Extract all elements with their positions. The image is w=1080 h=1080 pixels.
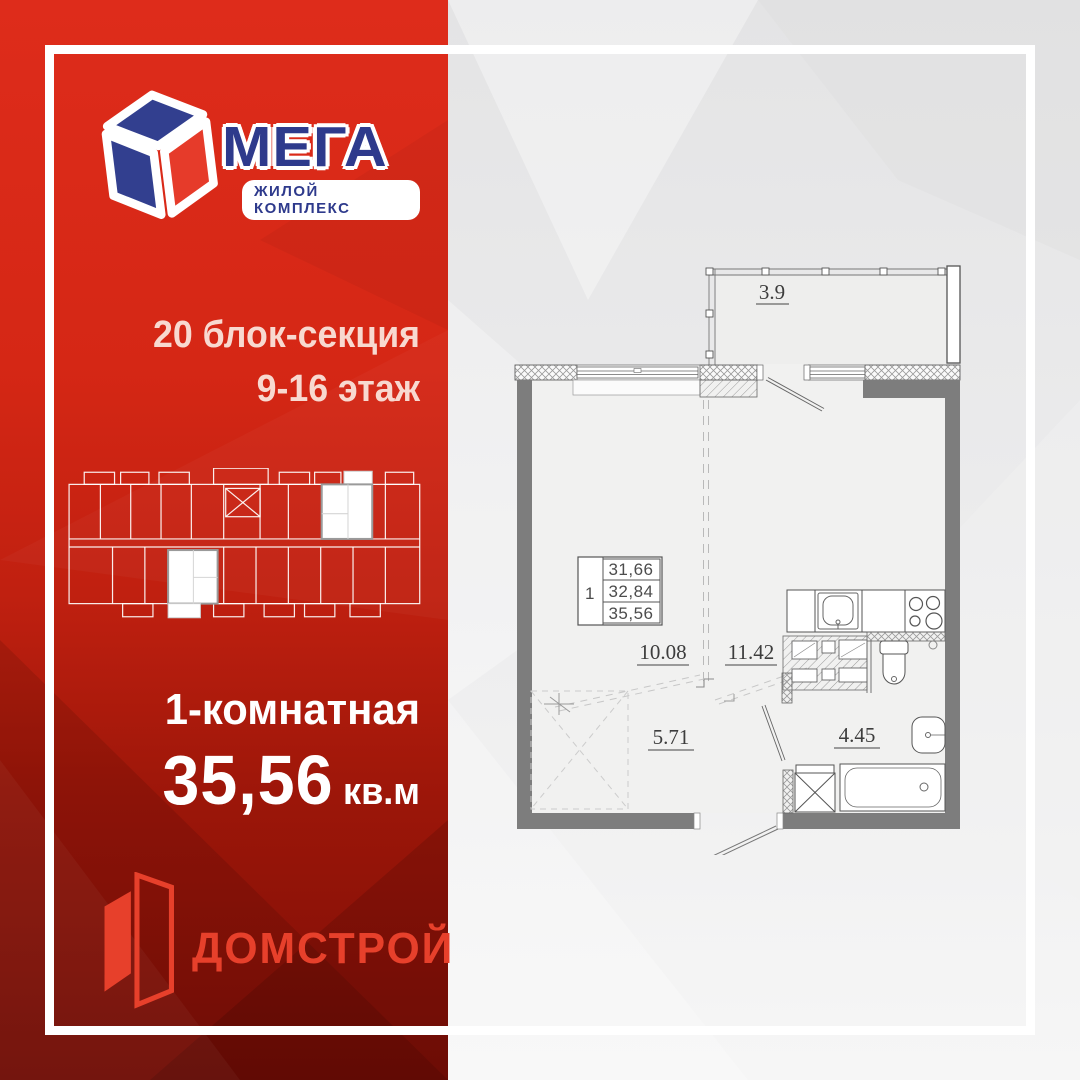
building-floor-overview [62,468,446,620]
stamp-apartment-area: 32,84 [608,582,653,601]
entry-door-leaf [664,826,778,855]
window-kitchen [810,367,865,378]
apartment-area: 35,56кв.м [78,740,420,820]
washbasin [912,717,945,753]
wc-partition-wall [867,632,945,641]
hall-area-label: 5.71 [653,725,690,749]
block-info: 20 блок-секция 9-16 этаж [100,308,420,416]
kitchen-counter [787,590,945,632]
window-main [573,367,700,395]
area-stamp: 1 31,66 32,84 35,56 [578,557,662,625]
developer-logo-block: ДОМСТРОЙ [96,872,436,1012]
toilet [880,641,908,684]
stamp-rooms: 1 [585,584,595,603]
balcony-door-opening [758,364,808,381]
floors-line: 9-16 этаж [100,362,420,416]
highlighted-apartment-top [322,471,373,539]
balcony-area-label: 3.9 [759,280,785,304]
apartment-floor-plan: 1 31,66 32,84 35,56 [500,255,990,855]
apartment-type-block: 1-комнатная 35,56кв.м [78,686,420,820]
domstroy-icon [96,872,182,1014]
block-section-line: 20 блок-секция [100,308,420,362]
brand-tagline-badge: ЖИЛОЙ КОМПЛЕКС [242,180,420,220]
mega-logo-block: МЕГА ЖИЛОЙ КОМПЛЕКС [100,88,420,228]
bath-area-label: 4.45 [839,723,876,747]
area-unit: кв.м [343,771,420,813]
bath-partition-lower [783,770,793,813]
brand-name: МЕГА [222,114,388,180]
room-area-label: 10.08 [639,640,686,664]
apartment-type: 1-комнатная [78,686,420,734]
balcony-floor [716,275,947,367]
developer-name: ДОМСТРОЙ [192,924,454,974]
bath-partition-upper [782,673,792,703]
area-value: 35,56 [162,741,333,819]
stamp-total-area: 35,56 [608,604,653,623]
kitchen-area-label: 11.42 [728,640,774,664]
mega-cube-icon [100,88,218,222]
washing-machine-spot [795,765,835,812]
stamp-living-area: 31,66 [608,560,653,579]
bathtub [840,764,945,811]
dining-table-group [783,636,867,690]
highlighted-apartment-bottom [168,550,218,618]
